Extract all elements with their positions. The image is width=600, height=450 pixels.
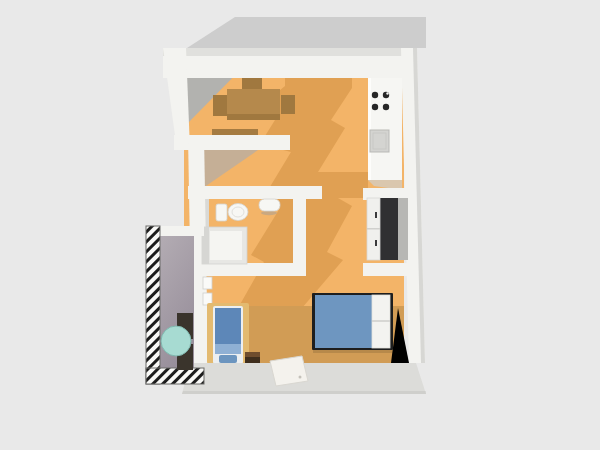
- bathroom-sink: [259, 199, 280, 211]
- balcony-rail-left: [146, 226, 160, 384]
- side-stool-top: [245, 352, 260, 357]
- balcony-door-panel-upper: [203, 277, 212, 289]
- balcony-rail-bottom: [146, 368, 204, 384]
- dining-chair-left: [213, 95, 227, 116]
- daybed-pillow: [219, 355, 237, 363]
- cooktop-burner-4: [383, 104, 389, 110]
- floor-rug: [270, 356, 308, 386]
- top-wall-outer-face: [163, 48, 417, 56]
- dining-chair-right: [281, 95, 295, 114]
- floor-plan-render: [0, 0, 600, 450]
- daybed-light-band: [215, 344, 241, 354]
- cooktop-burner-3: [372, 104, 378, 110]
- bathroom-bottom-wall: [188, 263, 306, 276]
- wardrobe-door-split: [367, 228, 380, 230]
- niche-back-shadow: [398, 198, 408, 260]
- bed-pillow-divider: [372, 320, 390, 322]
- dining-table-front-edge: [227, 114, 280, 120]
- dining-table: [227, 89, 280, 114]
- shower-tray: [210, 231, 242, 260]
- cooktop-burner-1: [372, 92, 378, 98]
- daybed-blanket: [215, 308, 241, 344]
- double-bed: [312, 293, 393, 353]
- balcony-table: [161, 326, 191, 356]
- bottom-wall-edge: [182, 391, 426, 394]
- bed-blanket: [315, 295, 372, 348]
- niche-bottom-trim: [363, 263, 415, 276]
- wall-shelf: [212, 129, 258, 135]
- basin-shadow: [261, 211, 277, 215]
- wardrobe: [380, 198, 398, 260]
- kitchen-area: [368, 78, 402, 190]
- kitchen-counter-edge: [368, 78, 371, 180]
- bed-shadow: [313, 350, 392, 353]
- toilet-bowl: [228, 204, 248, 221]
- floor-plan-canvas: [0, 0, 600, 450]
- wardrobe-handle-lower: [375, 240, 377, 246]
- rug-detail: [299, 376, 302, 379]
- burner-highlight: [386, 92, 388, 94]
- bathroom-right-wall: [293, 186, 306, 276]
- wardrobe-handle-upper: [375, 212, 377, 218]
- toilet-tank: [216, 204, 227, 221]
- rug: [270, 356, 308, 386]
